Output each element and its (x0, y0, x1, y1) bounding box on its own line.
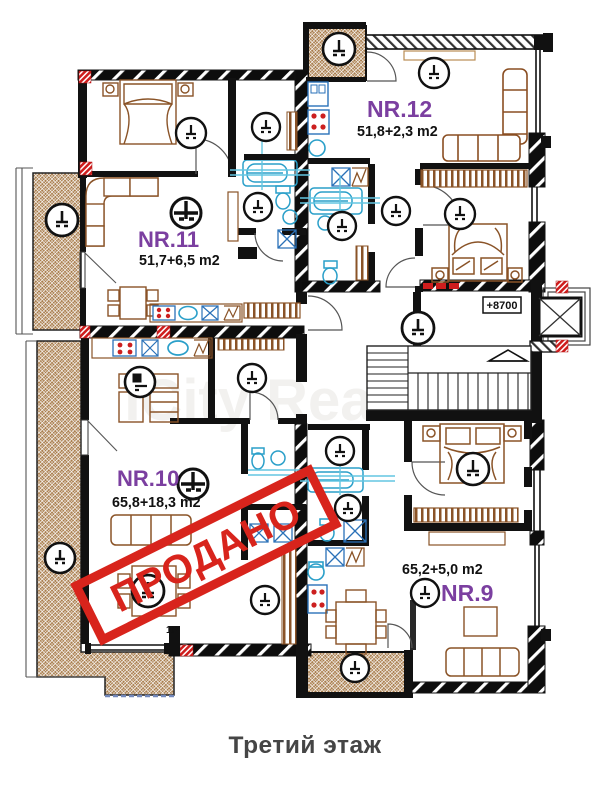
svg-text:51,7+6,5 m2: 51,7+6,5 m2 (139, 253, 220, 269)
svg-text:1Р: 1Р (166, 625, 179, 636)
svg-text:65,8+18,3 m2: 65,8+18,3 m2 (112, 495, 201, 511)
svg-text:NR.11: NR.11 (138, 227, 199, 252)
svg-text:Третий этаж: Третий этаж (229, 732, 382, 759)
svg-text:65,2+5,0 m2: 65,2+5,0 m2 (402, 562, 483, 578)
svg-text:51,8+2,3 m2: 51,8+2,3 m2 (357, 124, 438, 140)
svg-text:NR.10: NR.10 (117, 466, 179, 491)
svg-text:NR.12: NR.12 (367, 96, 432, 122)
svg-text:+8700: +8700 (487, 300, 518, 312)
svg-text:NR.9: NR.9 (441, 580, 493, 606)
